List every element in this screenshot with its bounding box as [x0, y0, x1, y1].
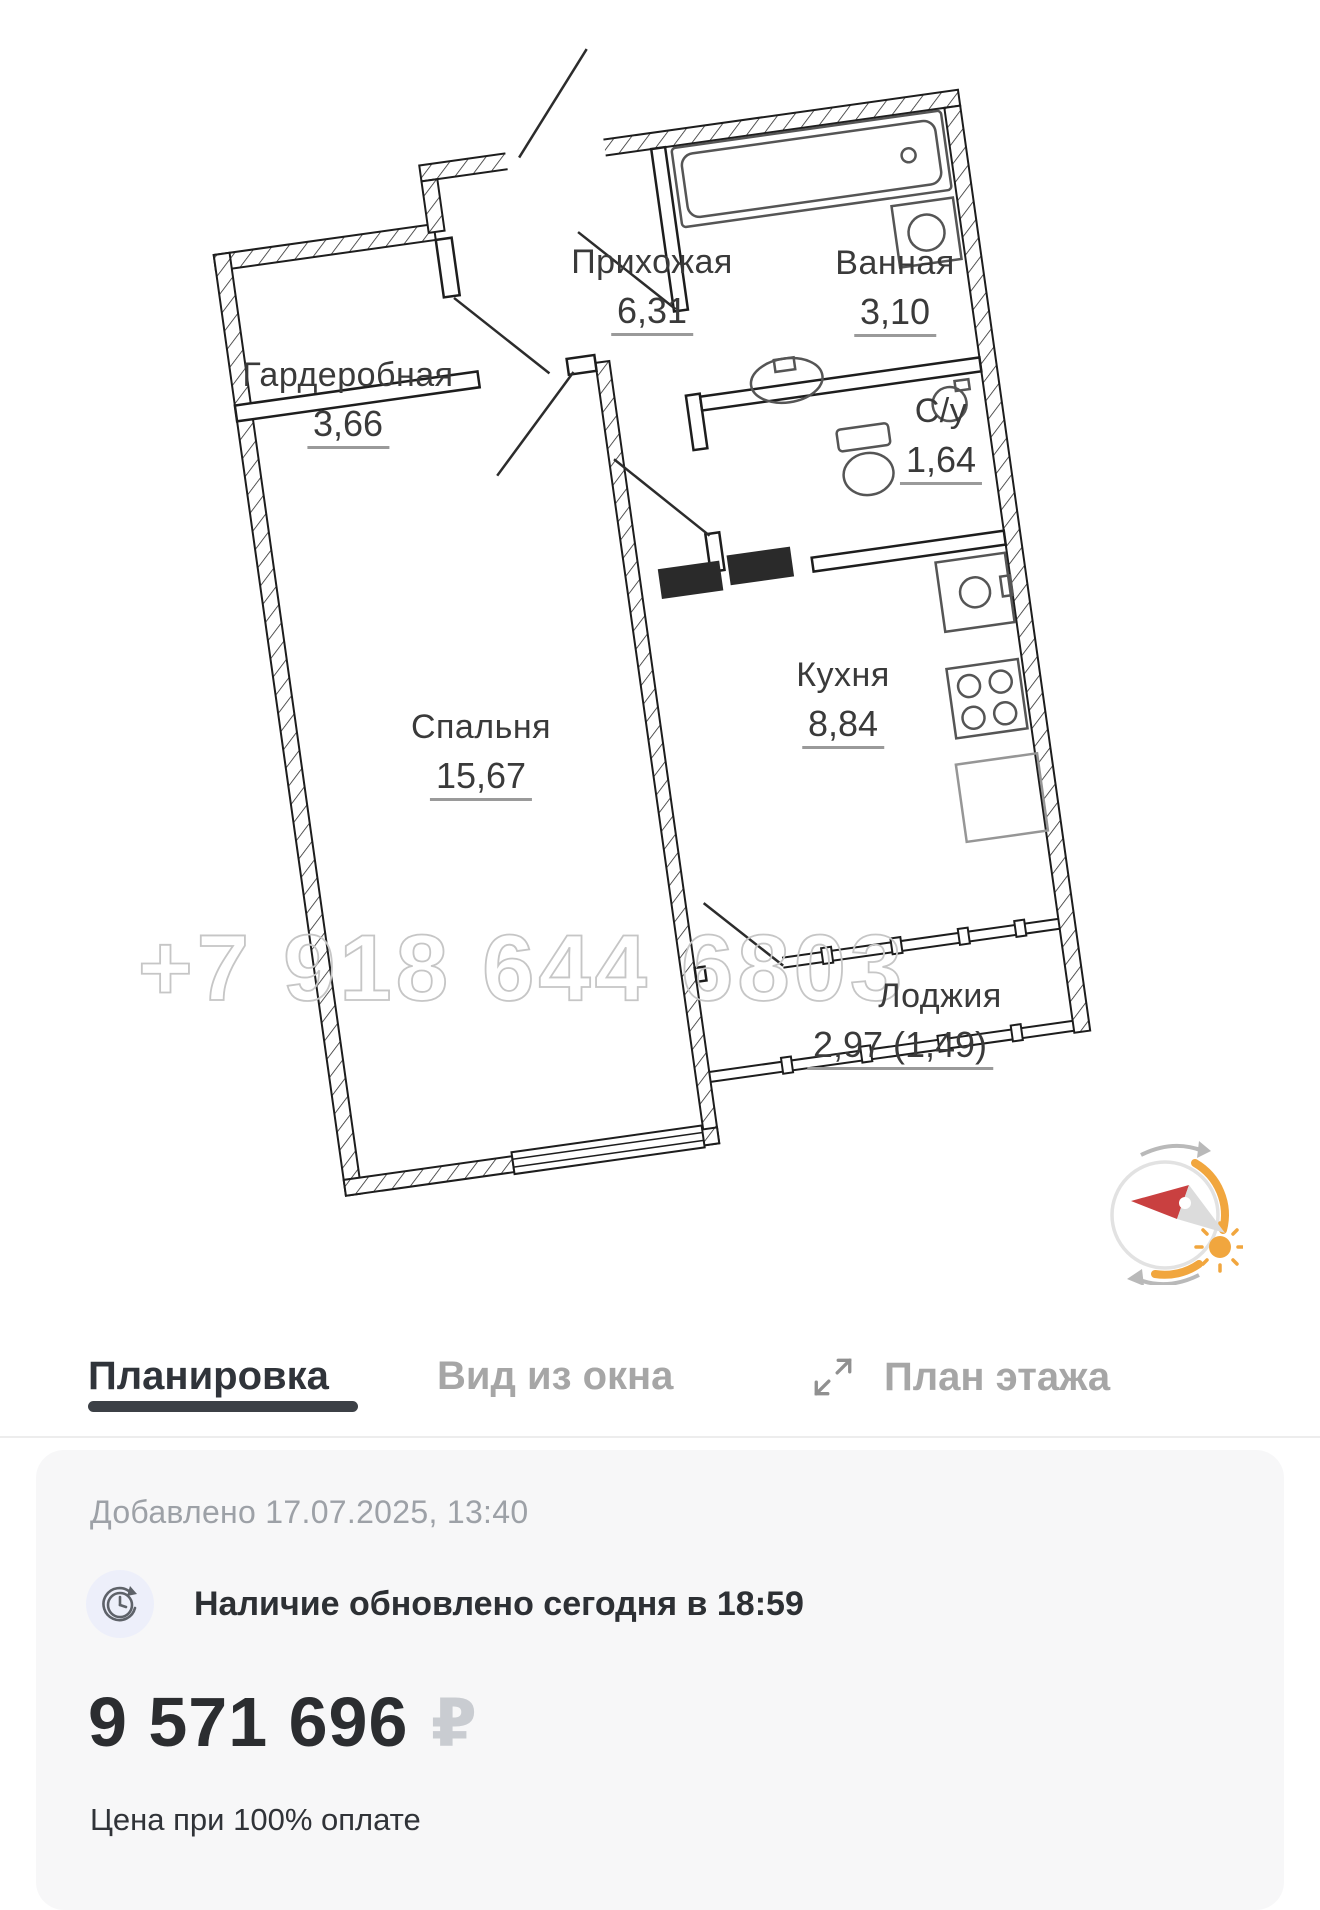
tab-layout[interactable]: Планировка	[88, 1354, 329, 1399]
room-label-wardrobe: Гардеробная 3,66	[242, 358, 453, 449]
room-label-wc: С/у 1,64	[900, 394, 982, 485]
tab-floor-plan[interactable]: План этажа	[810, 1354, 1110, 1400]
payment-note: Цена при 100% оплате	[90, 1802, 421, 1838]
kitchen-counter	[956, 753, 1048, 842]
bedroom-window	[511, 1126, 704, 1175]
toilet	[836, 423, 897, 499]
availability-text: Наличие обновлено сегодня в 18:59	[194, 1585, 804, 1624]
price-value: 9 571 696	[88, 1683, 408, 1761]
media-tabs: Планировка Вид из окна План этажа	[0, 1340, 1320, 1436]
added-date-text: Добавлено 17.07.2025, 13:40	[90, 1494, 528, 1531]
availability-row: Наличие обновлено сегодня в 18:59	[86, 1570, 804, 1638]
room-label-bedroom: Спальня 15,67	[411, 710, 551, 801]
room-label-kitchen: Кухня 8,84	[796, 658, 890, 749]
stove	[946, 659, 1027, 738]
listing-info-card: Добавлено 17.07.2025, 13:40 Наличие обно…	[36, 1450, 1284, 1910]
room-label-hall: Прихожая 6,31	[571, 245, 733, 336]
phone-watermark: +7 918 644 6803	[138, 915, 906, 1020]
kitchen-sink	[936, 552, 1017, 631]
floor-plan-viewer: +7 918 644 6803 Гардеробная 3,66 Прихожа…	[0, 0, 1320, 1290]
clock-refresh-icon	[86, 1570, 154, 1638]
tab-window-view[interactable]: Вид из окна	[437, 1354, 673, 1399]
active-tab-underline	[88, 1401, 358, 1412]
expand-icon	[810, 1354, 856, 1400]
floor-plan-drawing: +7 918 644 6803	[0, 0, 1320, 1290]
door-thresholds	[657, 547, 794, 599]
room-label-loggia: Лоджия 2,97 (1,49)	[798, 979, 1001, 1070]
ruble-sign: ₽	[431, 1685, 477, 1762]
price-row: 9 571 696 ₽	[88, 1682, 477, 1762]
door-leaves	[422, 40, 783, 998]
room-label-bath: Ванная 3,10	[835, 246, 954, 337]
compass-sun-widget[interactable]	[1103, 1133, 1243, 1285]
section-divider	[0, 1436, 1320, 1438]
tab-floor-plan-label: План этажа	[884, 1355, 1110, 1400]
